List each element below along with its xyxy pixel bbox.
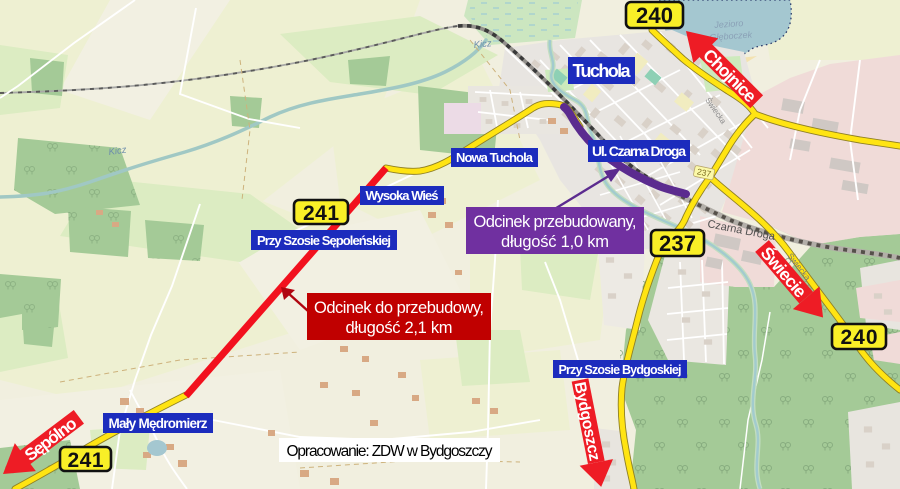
svg-text:Kicz: Kicz [473, 38, 492, 51]
svg-text:240: 240 [841, 326, 878, 349]
svg-text:Jezioro: Jezioro [713, 18, 744, 30]
svg-text:Odcinek do przebudowy,: Odcinek do przebudowy, [314, 299, 484, 317]
svg-text:Tuchola: Tuchola [573, 61, 632, 81]
svg-text:Ul. Czarna Droga: Ul. Czarna Droga [592, 143, 686, 159]
svg-text:241: 241 [68, 449, 104, 472]
svg-text:Nowa Tuchola: Nowa Tuchola [456, 150, 534, 165]
svg-text:241: 241 [303, 202, 339, 225]
svg-text:długość 2,1 km: długość 2,1 km [346, 319, 453, 337]
svg-text:Opracowanie: ZDW w Bydgoszczy: Opracowanie: ZDW w Bydgoszczy [287, 443, 493, 460]
svg-text:Przy Szosie Bydgoskiej: Przy Szosie Bydgoskiej [559, 363, 682, 377]
svg-text:237: 237 [659, 231, 696, 256]
svg-text:długość 1,0 km: długość 1,0 km [501, 233, 609, 251]
svg-text:Wysoka Wieś: Wysoka Wieś [366, 188, 439, 203]
svg-text:Przy Szosie Sępoleńskiej: Przy Szosie Sępoleńskiej [257, 233, 391, 248]
svg-text:240: 240 [636, 3, 673, 28]
svg-text:Odcinek przebudowany,: Odcinek przebudowany, [474, 213, 637, 231]
svg-text:Mały Mędromierz: Mały Mędromierz [109, 416, 208, 431]
